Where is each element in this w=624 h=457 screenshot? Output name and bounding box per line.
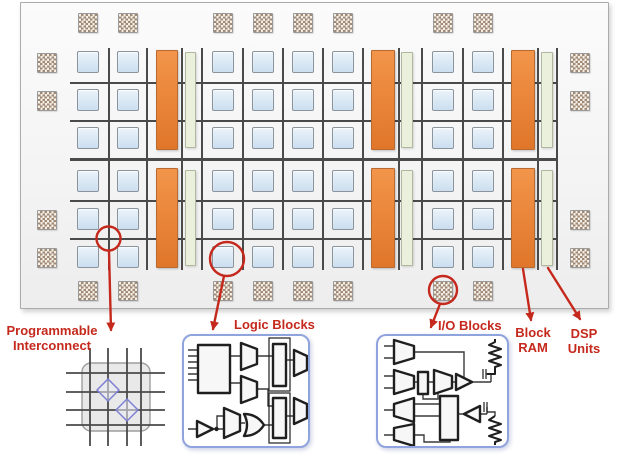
io-block-detail-inset bbox=[376, 334, 509, 448]
mux-icon bbox=[224, 408, 240, 438]
mux-icon bbox=[394, 424, 414, 446]
transistor-icon bbox=[483, 369, 491, 379]
label-line: Programmable bbox=[0, 323, 104, 338]
label-line: Block bbox=[507, 325, 559, 340]
mux-icon bbox=[241, 343, 257, 370]
flip-flop-icon bbox=[273, 398, 286, 438]
mux-icon bbox=[434, 370, 452, 394]
transistor-icon bbox=[484, 402, 487, 412]
flip-flop-icon bbox=[440, 396, 458, 440]
mux-icon bbox=[294, 398, 307, 424]
label-block-ram: Block RAM bbox=[507, 325, 559, 355]
flip-flop-icon bbox=[418, 372, 428, 394]
fpga-architecture-diagram: Programmable Interconnect Logic Blocks I… bbox=[0, 0, 624, 457]
resistor-icon bbox=[489, 416, 501, 445]
io-block-circuit bbox=[378, 336, 507, 446]
mux-icon bbox=[394, 370, 414, 394]
interconnect-detail-inset bbox=[58, 340, 172, 452]
label-dsp-units: DSP Units bbox=[559, 326, 609, 356]
flip-flop-icon bbox=[273, 344, 286, 386]
resistor-icon bbox=[487, 339, 501, 374]
mux-icon bbox=[241, 376, 257, 403]
or-gate-icon bbox=[244, 414, 264, 436]
mux-icon bbox=[394, 398, 414, 422]
label-line: DSP bbox=[559, 326, 609, 341]
junction-dot bbox=[214, 427, 218, 431]
mux-icon bbox=[294, 350, 307, 376]
label-io-blocks: I/O Blocks bbox=[438, 318, 502, 333]
mux-icon bbox=[394, 340, 414, 364]
label-programmable-interconnect: Programmable Interconnect bbox=[0, 323, 104, 353]
lut-icon bbox=[198, 345, 230, 393]
label-logic-blocks: Logic Blocks bbox=[234, 317, 315, 332]
fpga-die bbox=[20, 2, 609, 309]
label-line: Interconnect bbox=[0, 338, 104, 353]
buffer-icon bbox=[197, 421, 213, 437]
label-line: Units bbox=[559, 341, 609, 356]
logic-block-detail-inset bbox=[182, 334, 310, 448]
buffer-icon bbox=[464, 406, 480, 422]
label-line: RAM bbox=[507, 340, 559, 355]
logic-block-circuit bbox=[184, 336, 308, 446]
